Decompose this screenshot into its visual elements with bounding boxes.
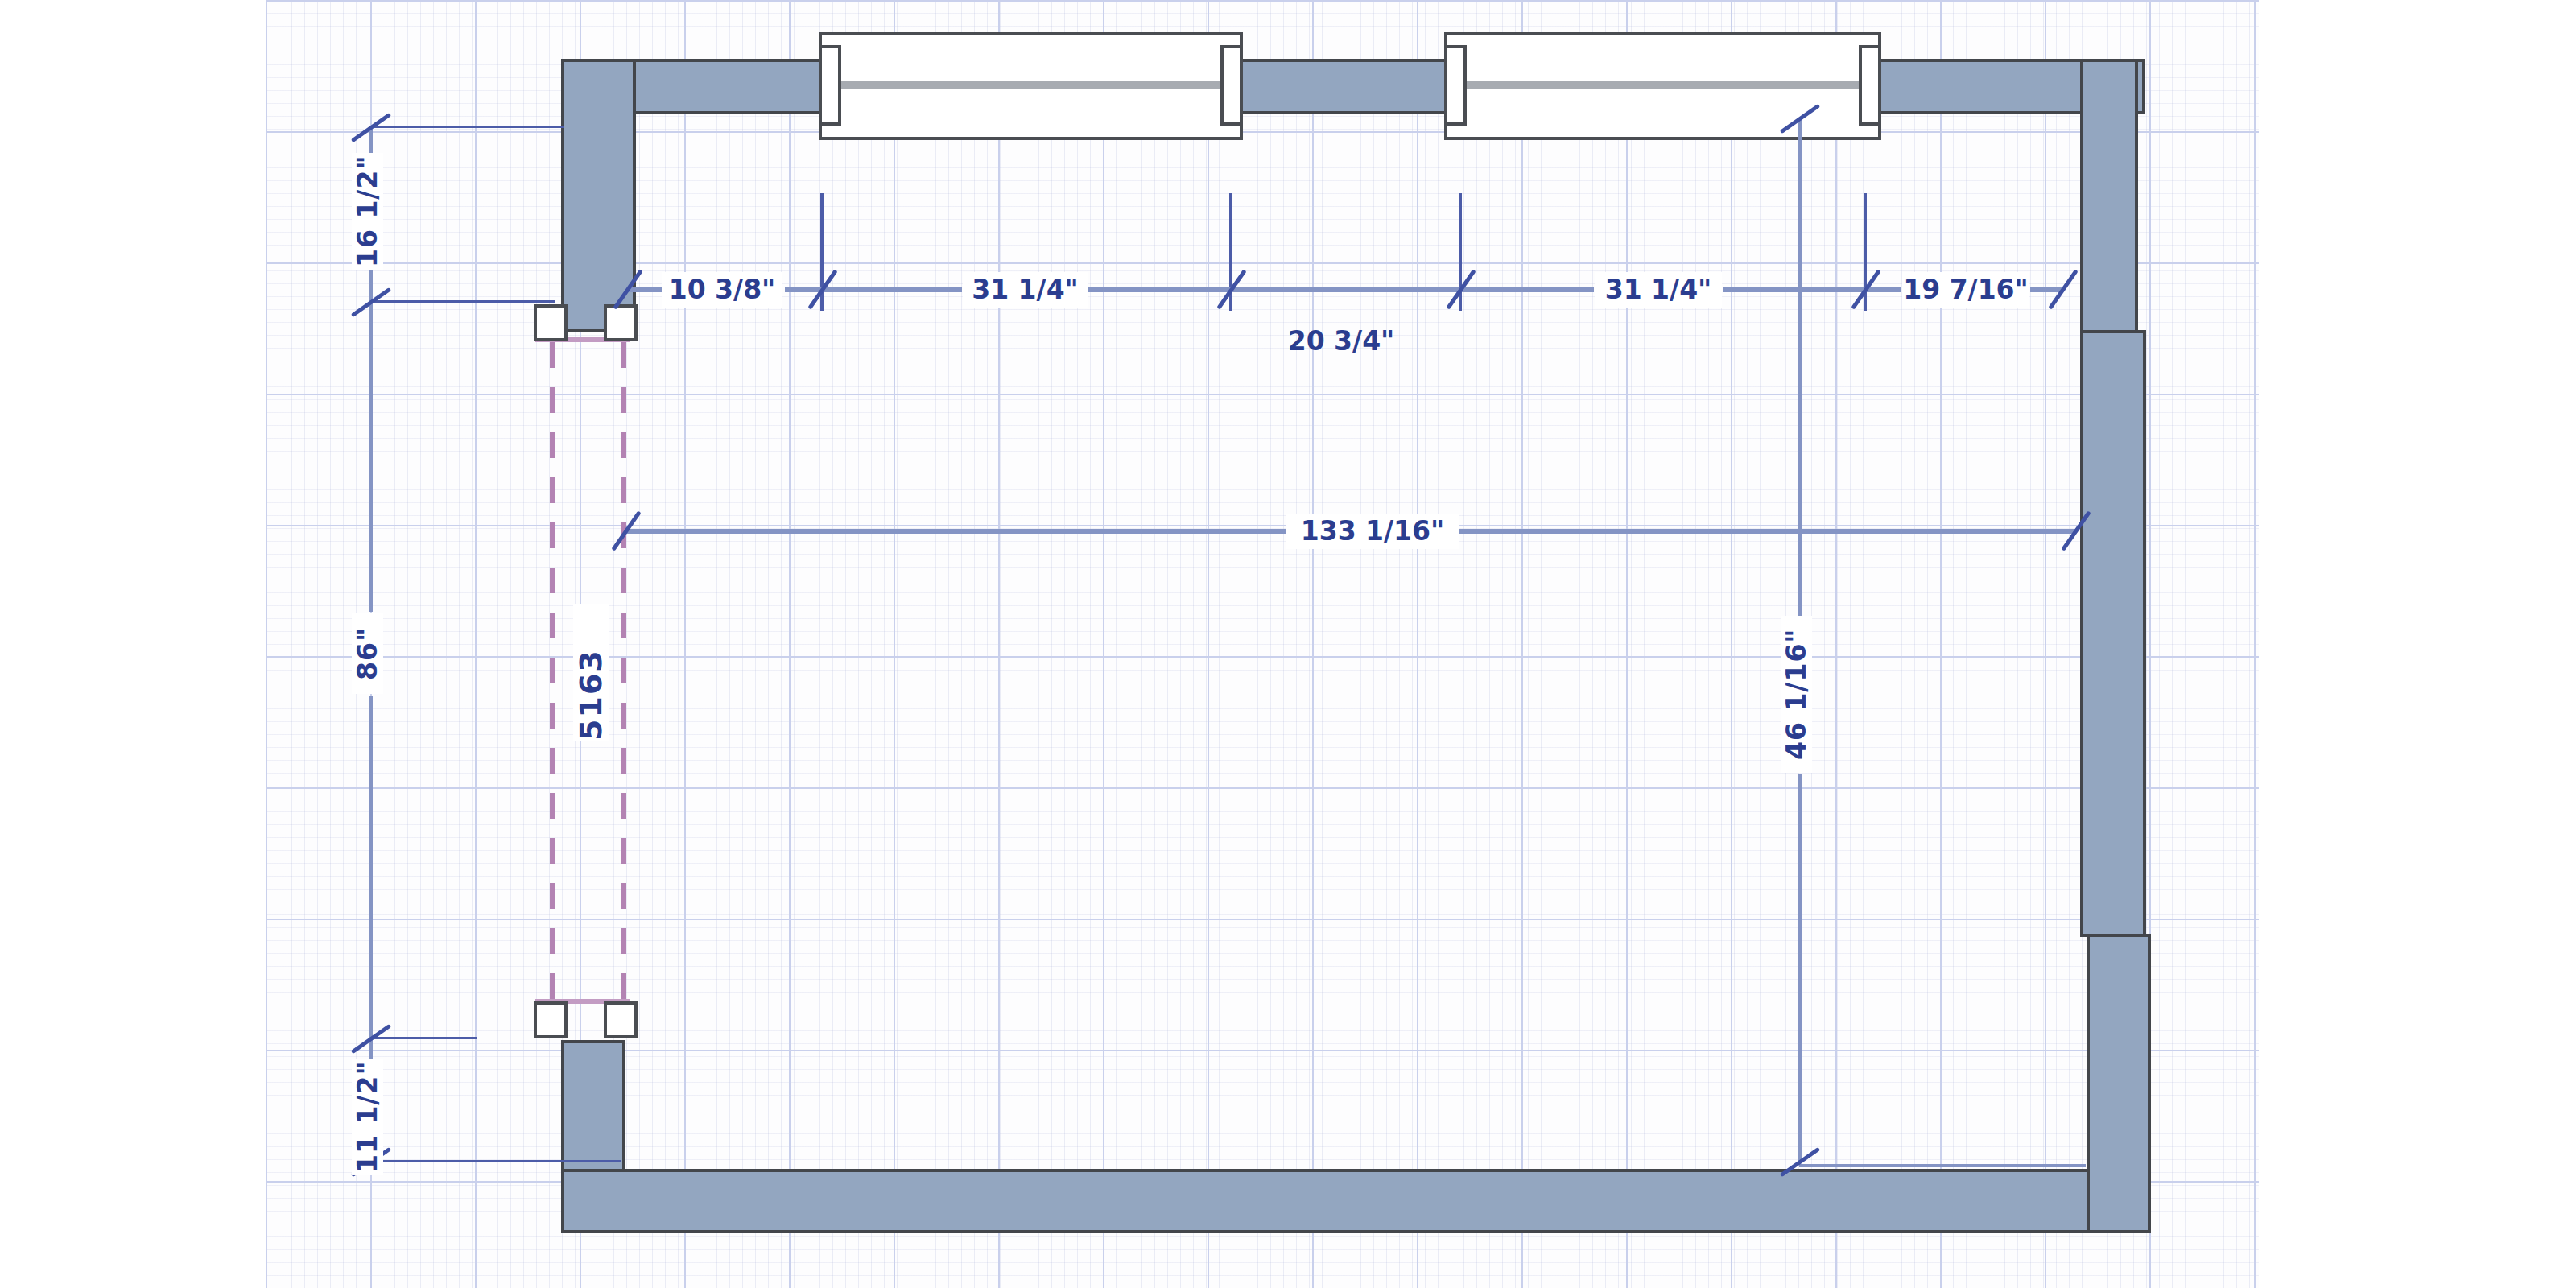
dim-extension bbox=[370, 126, 563, 128]
door-jamb-top-left bbox=[534, 304, 568, 341]
door-dashed-line-left[interactable] bbox=[550, 342, 555, 1001]
window-2-jamb-left bbox=[1444, 45, 1467, 126]
dim-line bbox=[369, 259, 373, 612]
dim-line bbox=[1088, 287, 1594, 292]
dim-extension bbox=[370, 300, 555, 303]
dim-line bbox=[785, 287, 962, 292]
dim-extension bbox=[370, 1160, 621, 1162]
window-1-sill bbox=[841, 80, 1220, 89]
door-jamb-bottom-right bbox=[604, 1001, 638, 1038]
dim-line bbox=[1723, 287, 1901, 292]
dim-line bbox=[2030, 287, 2062, 292]
window-2-jamb-right bbox=[1859, 45, 1881, 126]
wall-bottom[interactable] bbox=[561, 1169, 2148, 1233]
window-2-sill bbox=[1467, 80, 1859, 89]
dim-label-wall-to-window[interactable]: 10 3/8" bbox=[662, 272, 782, 308]
dim-label-top-to-door[interactable]: 16 1/2" bbox=[352, 153, 383, 270]
dim-line bbox=[369, 696, 373, 1059]
wall-right-bottom[interactable] bbox=[2087, 934, 2151, 1233]
dim-label-door-height[interactable]: 86" bbox=[352, 613, 383, 694]
dim-label-window2-width[interactable]: 31 1/4" bbox=[1595, 272, 1722, 308]
dim-line bbox=[1798, 118, 1802, 616]
dim-line bbox=[1457, 529, 2075, 534]
floorplan-canvas: 5163 10 3/8" 31 1/4" 31 1/4" 19 7/16" 20… bbox=[0, 0, 2576, 1288]
dim-label-window1-width[interactable]: 31 1/4" bbox=[963, 272, 1088, 308]
door-jamb-bottom-left bbox=[534, 1001, 568, 1038]
door-jamb-top-right bbox=[604, 304, 638, 341]
window-1-jamb-left bbox=[819, 45, 841, 126]
dim-label-overall-width[interactable]: 133 1/16" bbox=[1286, 514, 1459, 549]
dim-label-window-to-wall[interactable]: 19 7/16" bbox=[1902, 272, 2029, 308]
dim-label-room-height[interactable]: 46 1/16" bbox=[1781, 616, 1812, 773]
window-1-jamb-right bbox=[1220, 45, 1243, 126]
wall-right-mid[interactable] bbox=[2080, 330, 2146, 937]
dim-line bbox=[625, 529, 1288, 534]
dim-extension bbox=[1799, 1164, 2086, 1167]
dim-label-between-windows[interactable]: 20 3/4" bbox=[1277, 324, 1406, 359]
door-label[interactable]: 5163 bbox=[573, 604, 609, 741]
dim-label-door-to-bottom[interactable]: 11 1/2" bbox=[352, 1059, 383, 1175]
wall-top-mid-segment[interactable] bbox=[1231, 59, 1460, 114]
door-dashed-line-right[interactable] bbox=[621, 342, 626, 1001]
dim-line bbox=[1798, 774, 1802, 1162]
wall-right-top[interactable] bbox=[2080, 59, 2138, 333]
dim-extension bbox=[370, 1037, 477, 1039]
